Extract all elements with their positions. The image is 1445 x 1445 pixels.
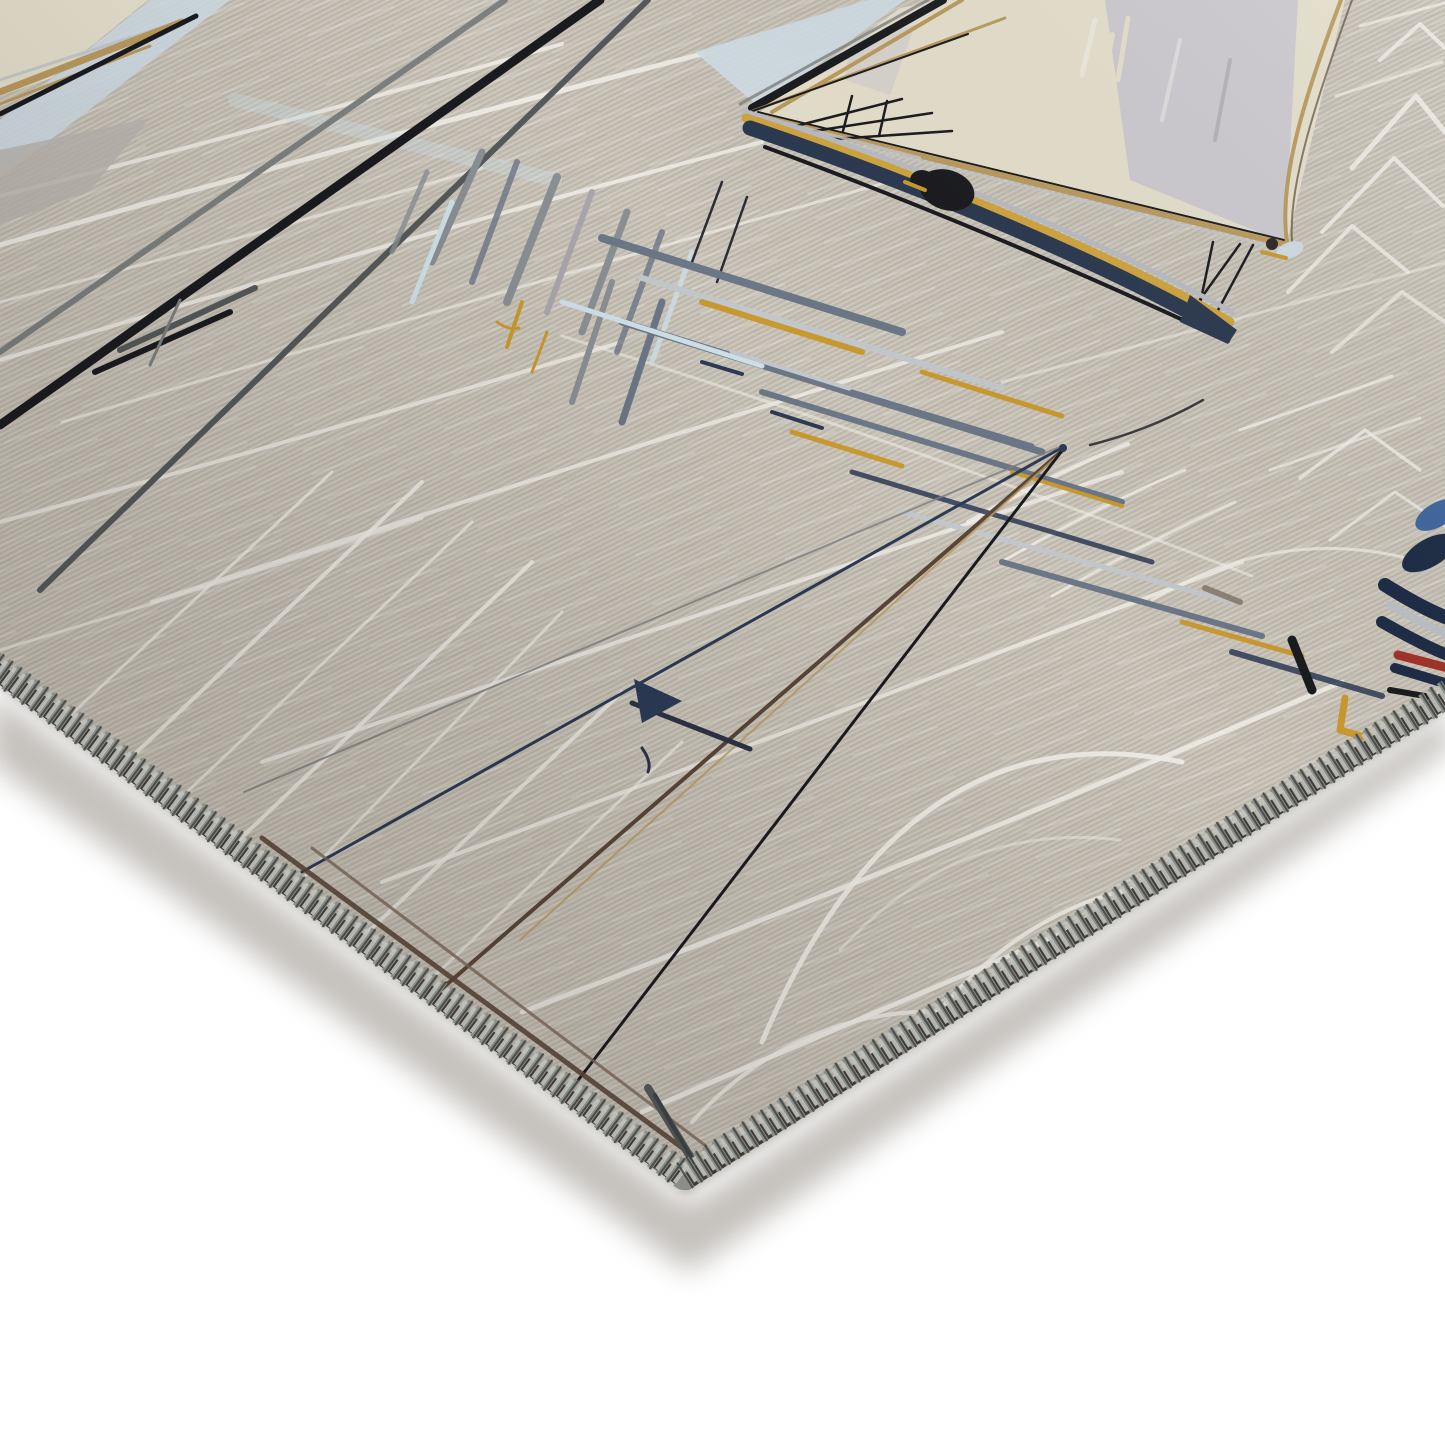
rug-corner-illustration: sailboat-print rug corner (0, 0, 1445, 1445)
product-photo: sailboat-print rug corner (0, 0, 1445, 1445)
